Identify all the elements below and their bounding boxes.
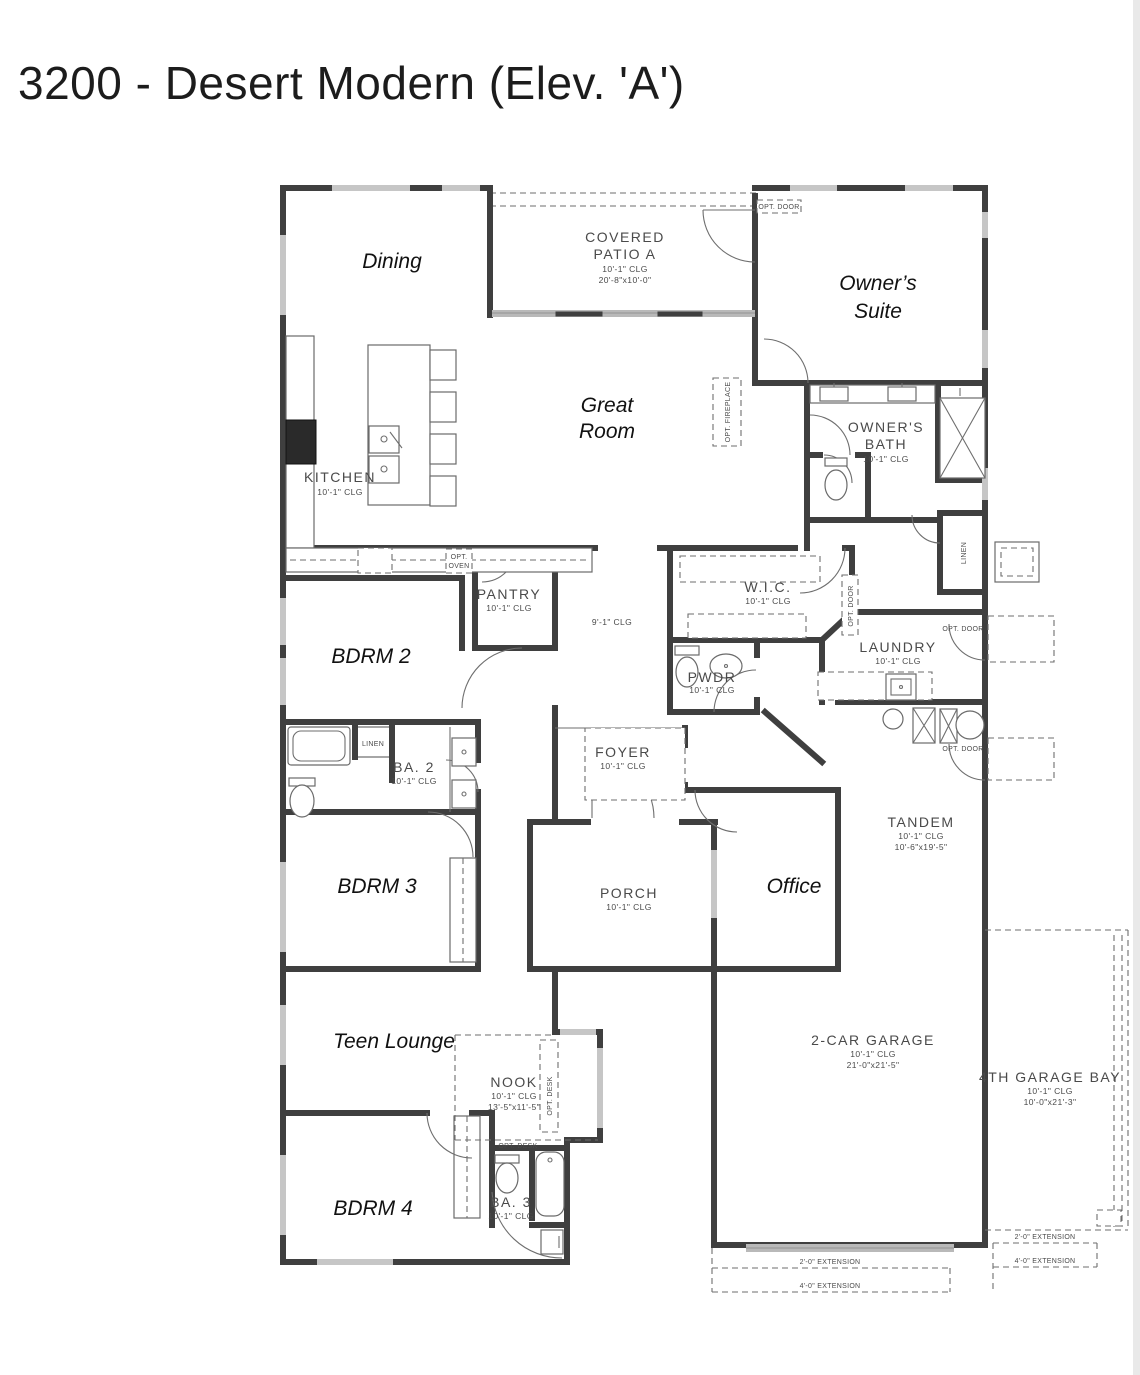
label-owners-bath-clg: 10'-1" CLG: [863, 454, 909, 464]
ba2-sink-1: [452, 738, 476, 766]
annotation-bdrm4: BDRM 4: [333, 1197, 412, 1220]
annotation-great-room-2: Room: [579, 420, 635, 443]
label-tandem-dims: 10'-6"x19'-5": [895, 842, 948, 852]
opt-desk-label-h: OPT. DESK: [498, 1143, 537, 1150]
label-foyer: FOYER: [595, 744, 651, 760]
wic-opt-door-label: OPT. DOOR: [848, 585, 855, 626]
label-garage2: 2-CAR GARAGE: [811, 1032, 935, 1048]
kitchen-range: [286, 420, 316, 464]
label-owners-bath-1: OWNER'S: [848, 419, 924, 435]
label-hall-clg: 9'-1" CLG: [592, 617, 632, 627]
label-covered-patio-2: PATIO A: [594, 246, 657, 262]
label-garage2-dims: 21'-0"x21'-5": [847, 1060, 900, 1070]
label-wic: W.I.C.: [744, 579, 791, 595]
label-garage4-dims: 10'-0"x21'-3": [1024, 1097, 1077, 1107]
interior-walls: [283, 383, 985, 1225]
floorplan-page: 3200 - Desert Modern (Elev. 'A'): [0, 0, 1140, 1375]
annotation-owners-suite-2: Suite: [854, 300, 902, 323]
label-nook-dims: 13'-5"x11'-5": [488, 1102, 540, 1112]
label-kitchen-clg: 10'-1" CLG: [317, 487, 363, 497]
ba2-tub: [288, 727, 350, 765]
label-pwdr-clg: 10'-1" CLG: [689, 685, 735, 695]
label-laundry: LAUNDRY: [859, 639, 936, 655]
kitchen-fixtures: OPT. OVEN: [286, 336, 592, 573]
label-laundry-clg: 10'-1" CLG: [875, 656, 921, 666]
label-garage2-clg: 10'-1" CLG: [850, 1049, 896, 1059]
annotation-teen-lounge: Teen Lounge: [333, 1030, 455, 1053]
label-kitchen: KITCHEN: [304, 469, 376, 485]
pwdr-toilet: [675, 646, 699, 655]
label-pwdr: PWDR: [688, 669, 737, 685]
label-nook: NOOK: [490, 1074, 537, 1090]
laundry-opt-door-label: OPT. DOOR: [942, 626, 983, 633]
label-pantry-clg: 10'-1" CLG: [486, 603, 532, 613]
label-covered-patio-1: COVERED: [585, 229, 665, 245]
label-garage4-clg: 10'-1" CLG: [1027, 1086, 1073, 1096]
ext-left-4-label: 4'-0" EXTENSION: [800, 1283, 861, 1290]
label-tandem: TANDEM: [887, 814, 954, 830]
label-garage4: 4TH GARAGE BAY: [979, 1069, 1121, 1085]
garage-elements: 2'-0" EXTENSION 4'-0" EXTENSION 2'-0" EX…: [712, 930, 1128, 1292]
label-wic-clg: 10'-1" CLG: [745, 596, 791, 606]
patio-opt-door: OPT. DOOR: [757, 200, 801, 213]
annotation-bdrm2: BDRM 2: [331, 645, 411, 668]
label-pantry: PANTRY: [477, 586, 542, 602]
label-porch: PORCH: [600, 885, 658, 901]
ba2-fixtures: LINEN: [288, 722, 476, 817]
label-tandem-clg: 10'-1" CLG: [898, 831, 944, 841]
owners-linen-label: LINEN: [961, 542, 968, 564]
label-ba3: BA. 3: [490, 1194, 532, 1210]
label-ba2: BA. 2: [393, 759, 435, 775]
garage-opt-door-label: OPT. DOOR: [942, 746, 983, 753]
annotation-great-room-1: Great: [581, 394, 635, 417]
great-room-fixtures: OPT. FIREPLACE: [713, 378, 741, 446]
label-owners-bath-2: BATH: [865, 436, 907, 452]
ba2-linen-label: LINEN: [362, 741, 384, 748]
ext-right-2-label: 2'-0" EXTENSION: [1015, 1234, 1076, 1241]
ba3-sink: [541, 1230, 563, 1254]
patio-opt-door-label: OPT. DOOR: [758, 204, 799, 211]
ext-left-2-label: 2'-0" EXTENSION: [800, 1259, 861, 1266]
label-nook-clg: 10'-1" CLG: [491, 1091, 537, 1101]
owners-toilet: [825, 458, 847, 466]
label-covered-patio-dims: 20'-8"x10'-0": [599, 275, 652, 285]
annotation-office: Office: [767, 875, 822, 898]
label-porch-clg: 10'-1" CLG: [606, 902, 652, 912]
covered-patio-outline: [490, 188, 757, 383]
opt-fireplace-label: OPT. FIREPLACE: [725, 382, 732, 443]
ext-right-4-label: 4'-0" EXTENSION: [1015, 1258, 1076, 1265]
kitchen-sink: [369, 426, 399, 453]
floorplan-drawing: OPT. OVEN OPT. FIREPLACE LINEN: [0, 0, 1140, 1375]
annotation-bdrm3: BDRM 3: [337, 875, 417, 898]
label-ba2-clg: 10'-1" CLG: [391, 776, 437, 786]
opt-oven-label-2: OVEN: [448, 563, 469, 570]
label-foyer-clg: 10'-1" CLG: [600, 761, 646, 771]
garage-opt-door-landing: [988, 738, 1054, 780]
label-covered-patio-clg: 10'-1" CLG: [602, 264, 648, 274]
opt-oven-label-1: OPT.: [451, 554, 468, 561]
opt-desk-label-v: OPT. DESK: [547, 1076, 554, 1115]
label-ba3-clg: 10'-1" CLG: [488, 1211, 534, 1221]
laundry-opt-door-landing: [988, 616, 1054, 662]
kitchen-dishwasher: [358, 548, 392, 573]
ba2-sink-2: [452, 780, 476, 808]
annotation-dining: Dining: [362, 250, 422, 273]
ba3-toilet: [495, 1155, 519, 1163]
annotation-owners-suite-1: Owner’s: [839, 272, 917, 295]
